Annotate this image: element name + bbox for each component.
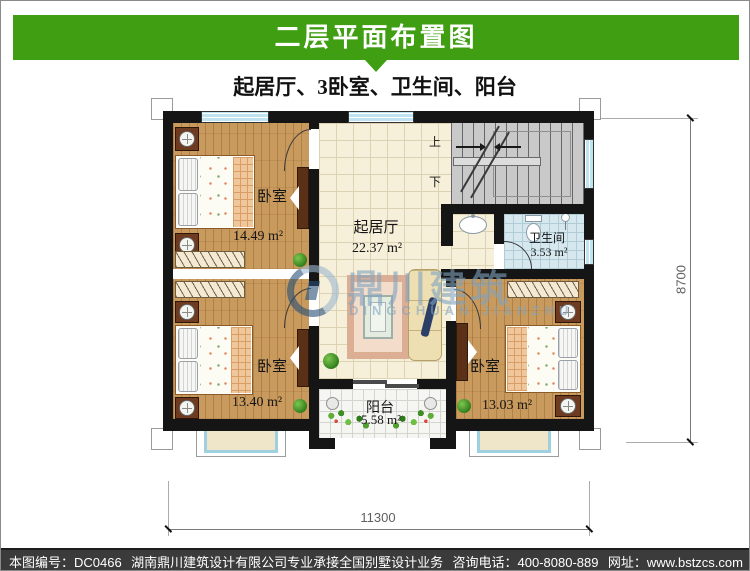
wardrobe-bl xyxy=(175,281,245,298)
bedroom-tl-area: 14.49 m² xyxy=(233,229,283,245)
nightstand xyxy=(175,127,199,151)
shower-hose xyxy=(565,221,566,230)
bed-br xyxy=(505,325,581,393)
bed-duvet xyxy=(528,327,556,391)
bedroom-bl-area: 13.40 m² xyxy=(232,395,282,411)
shower-head xyxy=(561,213,570,222)
watermark: 鼎川建筑 DINGCHUAN JIANZHU xyxy=(285,261,515,323)
wardrobe-br xyxy=(507,281,579,298)
wall-bottom-left xyxy=(163,419,319,431)
footer-bar: 本图编号：DC0466 湖南鼎川建筑设计有限公司专业承接全国别墅设计业务 咨询电… xyxy=(1,548,750,571)
dim-height-value: 8700 xyxy=(674,258,689,302)
living-label: 起居厅 xyxy=(353,216,398,237)
plant-icon xyxy=(293,399,307,413)
bed-bl xyxy=(175,325,253,395)
window-right-stairs xyxy=(584,139,594,189)
tv-cabinet-bl xyxy=(297,329,309,387)
bedroom-tl-label: 卧室 xyxy=(257,185,287,206)
tv-icon xyxy=(290,346,299,370)
watermark-en-text: DINGCHUAN JIANZHU xyxy=(349,303,573,318)
pilaster-bottom-right xyxy=(579,428,601,450)
lamp-icon xyxy=(560,398,576,414)
tv-icon xyxy=(290,186,299,210)
bed-pillows xyxy=(557,327,579,391)
bed-pillows xyxy=(177,327,199,393)
stairs-up-label: 上 xyxy=(429,133,441,150)
bed-blanket xyxy=(507,327,527,391)
stair-arrow-up-line xyxy=(456,146,480,148)
footer-plan-number: 本图编号：DC0466 xyxy=(9,552,122,571)
footer-company: 湖南鼎川建筑设计有限公司专业承接全国别墅设计业务 xyxy=(131,552,443,571)
bed-blanket xyxy=(231,327,251,393)
nightstand xyxy=(175,301,199,323)
balcony-pier-right xyxy=(430,438,446,449)
lamp-icon xyxy=(179,131,195,147)
wall-bathroom-left xyxy=(494,214,504,244)
stair-handrail xyxy=(453,157,541,166)
stair-arrow-up-head xyxy=(480,143,486,151)
bedroom-br-area: 13.03 m² xyxy=(482,398,532,414)
tv-cabinet-tl xyxy=(297,167,309,229)
lamp-icon xyxy=(179,400,195,416)
bed-duvet xyxy=(200,327,230,393)
dim-ext-right-top xyxy=(601,118,698,119)
plant-icon xyxy=(457,399,471,413)
sink-faucet xyxy=(471,214,475,218)
wall-mid-left-seg3 xyxy=(309,326,319,419)
balcony-sliding-door-panel2 xyxy=(385,384,419,388)
window-top-bedroom xyxy=(201,111,269,123)
living-area: 22.37 m² xyxy=(352,241,402,257)
window-right-bathroom xyxy=(584,239,594,265)
wall-service-left xyxy=(441,204,453,246)
balcony-area: 5.58 m² xyxy=(361,412,401,428)
window-top-living xyxy=(348,111,414,123)
bedroom-bl-label: 卧室 xyxy=(257,355,287,376)
wall-balcony-door-right xyxy=(417,379,451,389)
page-subtitle: 起居厅、3卧室、卫生间、阳台 xyxy=(1,71,749,101)
balcony-pier-left xyxy=(319,438,335,449)
stairs-down-label: 下 xyxy=(429,173,441,190)
wall-balcony-right xyxy=(446,431,456,449)
stair-arrow-down-line xyxy=(499,146,521,148)
floor-plan-page: 二层平面布置图 起居厅、3卧室、卫生间、阳台 xyxy=(0,0,750,571)
dim-line-bottom xyxy=(168,529,589,530)
footer-website: 网址：www.bstzcs.com xyxy=(608,552,743,571)
nightstand xyxy=(175,397,199,419)
balcony-sliding-door-panel1 xyxy=(353,380,387,384)
wall-under-stairs xyxy=(441,204,594,214)
wall-mid-right-seg2 xyxy=(446,321,456,419)
bed-pillows xyxy=(177,157,199,227)
wall-balcony-door-left xyxy=(319,379,353,389)
pilaster-bottom-left xyxy=(151,428,173,450)
bed-blanket xyxy=(233,157,253,227)
wall-bottom-right xyxy=(446,419,594,431)
sink xyxy=(459,216,487,234)
dim-width-value: 11300 xyxy=(360,510,395,525)
bed-tl xyxy=(175,155,255,229)
toilet-tank xyxy=(525,215,542,222)
nightstand xyxy=(555,395,581,417)
wall-left xyxy=(163,111,173,431)
bedroom-br-label: 卧室 xyxy=(470,355,500,376)
bed-duvet xyxy=(200,157,232,227)
wall-balcony-left xyxy=(309,419,319,449)
dim-line-right xyxy=(690,118,691,443)
stair-arrow-down-head xyxy=(494,143,500,151)
lamp-icon xyxy=(179,304,195,320)
tv-cabinet-br xyxy=(456,323,468,381)
dim-ext-right-bottom xyxy=(626,442,698,443)
wardrobe-tl xyxy=(175,251,245,268)
plant-icon xyxy=(323,353,339,369)
page-title: 二层平面布置图 xyxy=(13,15,739,60)
bathroom-label: 卫生间 xyxy=(529,229,565,246)
title-banner: 二层平面布置图 xyxy=(13,15,739,60)
bathroom-area: 3.53 m² xyxy=(531,245,568,260)
footer-phone: 咨询电话：400-8080-889 xyxy=(453,552,599,571)
